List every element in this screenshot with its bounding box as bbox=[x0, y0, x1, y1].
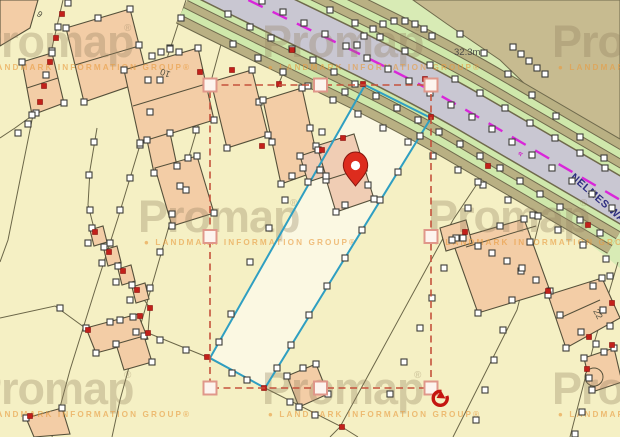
vertex-marker bbox=[312, 412, 318, 418]
vertex-marker bbox=[475, 179, 481, 185]
vertex-marker bbox=[364, 55, 370, 61]
vertex-marker bbox=[284, 373, 290, 379]
vertex-marker bbox=[509, 297, 515, 303]
change-vertex-marker bbox=[320, 148, 325, 153]
vertex-marker bbox=[249, 67, 255, 73]
vertex-marker bbox=[581, 355, 587, 361]
vertex-marker bbox=[63, 25, 69, 31]
vertex-marker bbox=[85, 240, 91, 246]
vertex-marker bbox=[448, 102, 454, 108]
watermark-reg: ® bbox=[124, 23, 132, 34]
vertex-marker bbox=[533, 277, 539, 283]
vertex-marker bbox=[391, 18, 397, 24]
vertex-marker bbox=[380, 125, 386, 131]
vertex-marker bbox=[149, 359, 155, 365]
vertex-marker bbox=[101, 244, 107, 250]
vertex-marker bbox=[169, 211, 175, 217]
vertex-marker bbox=[607, 273, 613, 279]
vertex-marker bbox=[278, 181, 284, 187]
vertex-marker bbox=[274, 365, 280, 371]
vertex-marker bbox=[319, 129, 325, 135]
selection-handle-sw[interactable] bbox=[204, 382, 217, 395]
vertex-marker bbox=[421, 26, 427, 32]
vertex-marker bbox=[370, 26, 376, 32]
vertex-marker bbox=[99, 260, 105, 266]
vertex-marker bbox=[460, 235, 466, 241]
watermark-tagline: ● LANDMARK INFORMATION GROUP® bbox=[268, 63, 481, 72]
vertex-marker bbox=[527, 120, 533, 126]
vertex-marker bbox=[113, 279, 119, 285]
vertex-marker bbox=[287, 399, 293, 405]
vertex-marker bbox=[380, 21, 386, 27]
vertex-marker bbox=[549, 165, 555, 171]
vertex-marker bbox=[342, 255, 348, 261]
vertex-marker bbox=[572, 431, 578, 437]
vertex-marker bbox=[521, 216, 527, 222]
watermark-tagline: ● LANDMARK INFORMATION GROUP® bbox=[558, 410, 620, 419]
vertex-marker bbox=[509, 139, 515, 145]
vertex-marker bbox=[185, 155, 191, 161]
vertex-marker bbox=[354, 42, 360, 48]
vertex-marker bbox=[441, 265, 447, 271]
change-vertex-marker bbox=[138, 314, 143, 319]
vertex-marker bbox=[147, 285, 153, 291]
vertex-marker bbox=[136, 42, 142, 48]
vertex-marker bbox=[151, 170, 157, 176]
vertex-marker bbox=[359, 227, 365, 233]
vertex-marker bbox=[265, 132, 271, 138]
change-vertex-marker bbox=[38, 100, 43, 105]
change-vertex-marker bbox=[135, 288, 140, 293]
vertex-marker bbox=[377, 197, 383, 203]
vertex-marker bbox=[307, 125, 313, 131]
vertex-marker bbox=[317, 167, 323, 173]
vertex-marker bbox=[49, 50, 55, 56]
vertex-marker bbox=[526, 58, 532, 64]
vertex-marker bbox=[324, 283, 330, 289]
change-vertex-marker bbox=[546, 289, 551, 294]
vertex-marker bbox=[330, 97, 336, 103]
vertex-marker bbox=[121, 67, 127, 73]
vertex-marker bbox=[288, 342, 294, 348]
vertex-marker bbox=[429, 33, 435, 39]
change-vertex-marker bbox=[121, 269, 126, 274]
vertex-marker bbox=[55, 24, 61, 30]
vertex-marker bbox=[589, 387, 595, 393]
vertex-marker bbox=[158, 49, 164, 55]
vertex-marker bbox=[557, 204, 563, 210]
vertex-marker bbox=[300, 165, 306, 171]
vertex-marker bbox=[331, 69, 337, 75]
vertex-marker bbox=[93, 350, 99, 356]
watermark-tagline: ● LANDMARK INFORMATION GROUP® bbox=[268, 410, 481, 419]
vertex-marker bbox=[195, 45, 201, 51]
change-vertex-marker bbox=[463, 230, 468, 235]
change-vertex-marker bbox=[86, 328, 91, 333]
vertex-marker bbox=[599, 275, 605, 281]
vertex-marker bbox=[557, 312, 563, 318]
vertex-marker bbox=[130, 314, 136, 320]
vertex-marker bbox=[535, 213, 541, 219]
vertex-marker bbox=[342, 202, 348, 208]
vertex-marker bbox=[322, 31, 328, 37]
vertex-marker bbox=[25, 121, 31, 127]
vertex-marker bbox=[465, 205, 471, 211]
vertex-marker bbox=[260, 97, 266, 103]
vertex-marker bbox=[593, 341, 599, 347]
vertex-marker bbox=[401, 359, 407, 365]
vertex-marker bbox=[91, 139, 97, 145]
vertex-marker bbox=[394, 105, 400, 111]
vertex-marker bbox=[343, 43, 349, 49]
vertex-marker bbox=[607, 323, 613, 329]
vertex-marker bbox=[406, 78, 412, 84]
vertex-marker bbox=[473, 417, 479, 423]
vertex-marker bbox=[127, 297, 133, 303]
vertex-marker bbox=[176, 49, 182, 55]
vertex-marker bbox=[342, 89, 348, 95]
vertex-marker bbox=[133, 329, 139, 335]
change-vertex-marker bbox=[48, 60, 53, 65]
vertex-marker bbox=[129, 282, 135, 288]
vertex-marker bbox=[297, 153, 303, 159]
vertex-marker bbox=[601, 155, 607, 161]
selection-handle-e[interactable] bbox=[425, 230, 438, 243]
vertex-marker bbox=[497, 165, 503, 171]
vertex-marker bbox=[107, 319, 113, 325]
vertex-marker bbox=[365, 182, 371, 188]
vertex-marker bbox=[455, 167, 461, 173]
vertex-marker bbox=[81, 99, 87, 105]
vertex-marker bbox=[385, 66, 391, 72]
vertex-marker bbox=[449, 237, 455, 243]
vertex-marker bbox=[352, 20, 358, 26]
vertex-marker bbox=[427, 62, 433, 68]
vertex-marker bbox=[504, 258, 510, 264]
vertex-marker bbox=[300, 365, 306, 371]
vertex-marker bbox=[228, 311, 234, 317]
watermark-tagline: ● LANDMARK INFORMATION GROUP® bbox=[144, 238, 357, 247]
vertex-marker bbox=[280, 9, 286, 15]
watermark-brand: Promap bbox=[262, 16, 424, 67]
vertex-marker bbox=[147, 109, 153, 115]
change-vertex-marker bbox=[93, 230, 98, 235]
vertex-marker bbox=[377, 34, 383, 40]
vertex-marker bbox=[502, 105, 508, 111]
vertex-marker bbox=[569, 178, 575, 184]
vertex-marker bbox=[127, 175, 133, 181]
vertex-marker bbox=[282, 197, 288, 203]
change-vertex-marker bbox=[198, 70, 203, 75]
vertex-marker bbox=[529, 92, 535, 98]
vertex-marker bbox=[266, 225, 272, 231]
vertex-marker bbox=[289, 173, 295, 179]
vertex-marker bbox=[177, 183, 183, 189]
vertex-marker bbox=[306, 312, 312, 318]
vertex-marker bbox=[174, 163, 180, 169]
change-vertex-marker bbox=[42, 84, 47, 89]
vertex-marker bbox=[577, 150, 583, 156]
vertex-marker bbox=[553, 113, 559, 119]
change-vertex-marker bbox=[340, 425, 345, 430]
change-vertex-marker bbox=[230, 68, 235, 73]
watermark-brand: Promap bbox=[0, 363, 134, 414]
vertex-marker bbox=[469, 114, 475, 120]
change-vertex-marker bbox=[486, 164, 491, 169]
vertex-marker bbox=[127, 6, 133, 12]
vertex-marker bbox=[224, 145, 230, 151]
vertex-marker bbox=[590, 283, 596, 289]
vertex-marker bbox=[59, 405, 65, 411]
change-vertex-marker bbox=[107, 250, 112, 255]
vertex-marker bbox=[481, 50, 487, 56]
vertex-marker bbox=[518, 51, 524, 57]
vertex-marker bbox=[247, 259, 253, 265]
vertex-marker bbox=[477, 153, 483, 159]
vertex-marker bbox=[145, 77, 151, 83]
vertex-marker bbox=[216, 339, 222, 345]
change-vertex-marker bbox=[290, 48, 295, 53]
vertex-marker bbox=[387, 391, 393, 397]
vertex-marker bbox=[578, 329, 584, 335]
selection-handle-w[interactable] bbox=[204, 230, 217, 243]
vertex-marker bbox=[505, 197, 511, 203]
promap-map-canvas[interactable]: Promap®● LANDMARK INFORMATION GROUP®Prom… bbox=[0, 0, 620, 437]
vertex-marker bbox=[580, 242, 586, 248]
selection-handle-s[interactable] bbox=[314, 382, 327, 395]
vertex-marker bbox=[475, 243, 481, 249]
vertex-marker bbox=[310, 57, 316, 63]
vertex-marker bbox=[29, 112, 35, 118]
vertex-marker bbox=[395, 169, 401, 175]
vertex-marker bbox=[457, 141, 463, 147]
vertex-marker bbox=[355, 111, 361, 117]
selection-handle-nw[interactable] bbox=[204, 79, 217, 92]
vertex-marker bbox=[534, 65, 540, 71]
vertex-marker bbox=[137, 140, 143, 146]
vertex-marker bbox=[491, 357, 497, 363]
vertex-marker bbox=[497, 223, 503, 229]
pin-hole bbox=[351, 161, 360, 170]
vertex-marker bbox=[603, 256, 609, 262]
change-vertex-marker bbox=[260, 144, 265, 149]
change-vertex-marker bbox=[587, 335, 592, 340]
vertex-marker bbox=[95, 15, 101, 21]
selection-handle-n[interactable] bbox=[314, 79, 327, 92]
vertex-marker bbox=[117, 207, 123, 213]
vertex-marker bbox=[167, 130, 173, 136]
vertex-marker bbox=[609, 205, 615, 211]
spot-height-label: 32.3m bbox=[454, 47, 480, 58]
vertex-marker bbox=[15, 130, 21, 136]
vertex-marker bbox=[402, 18, 408, 24]
vertex-marker bbox=[247, 24, 253, 30]
vertex-marker bbox=[333, 209, 339, 215]
vertex-marker bbox=[563, 345, 569, 351]
change-vertex-marker bbox=[205, 355, 210, 360]
watermark-brand: Promap bbox=[552, 16, 620, 67]
vertex-marker bbox=[537, 191, 543, 197]
vertex-marker bbox=[183, 347, 189, 353]
vertex-marker bbox=[115, 263, 121, 269]
vertex-marker bbox=[19, 59, 25, 65]
vertex-marker bbox=[373, 93, 379, 99]
vertex-marker bbox=[113, 341, 119, 347]
vertex-marker bbox=[527, 239, 533, 245]
vertex-marker bbox=[500, 327, 506, 333]
vertex-marker bbox=[517, 178, 523, 184]
vertex-marker bbox=[529, 152, 535, 158]
change-vertex-marker bbox=[586, 223, 591, 228]
vertex-marker bbox=[301, 20, 307, 26]
vertex-marker bbox=[577, 217, 583, 223]
vertex-marker bbox=[87, 207, 93, 213]
vertex-marker bbox=[600, 307, 606, 313]
vertex-marker bbox=[457, 31, 463, 37]
change-vertex-marker bbox=[54, 36, 59, 41]
vertex-marker bbox=[157, 337, 163, 343]
vertex-marker bbox=[229, 370, 235, 376]
vertex-marker bbox=[323, 173, 329, 179]
vertex-marker bbox=[371, 196, 377, 202]
vertex-marker bbox=[299, 85, 305, 91]
map-svg[interactable]: Promap®● LANDMARK INFORMATION GROUP®Prom… bbox=[0, 0, 620, 437]
vertex-marker bbox=[65, 0, 71, 6]
vertex-marker bbox=[601, 349, 607, 355]
vertex-marker bbox=[405, 139, 411, 145]
vertex-marker bbox=[412, 21, 418, 27]
vertex-marker bbox=[402, 48, 408, 54]
vertex-marker bbox=[149, 53, 155, 59]
vertex-marker bbox=[352, 81, 358, 87]
vertex-marker bbox=[589, 191, 595, 197]
change-vertex-marker bbox=[585, 367, 590, 372]
vertex-marker bbox=[280, 69, 286, 75]
vertex-marker bbox=[167, 46, 173, 52]
change-vertex-marker bbox=[146, 331, 151, 336]
vertex-marker bbox=[597, 230, 603, 236]
vertex-marker bbox=[552, 135, 558, 141]
vertex-marker bbox=[577, 134, 583, 140]
vertex-marker bbox=[183, 187, 189, 193]
vertex-marker bbox=[415, 117, 421, 123]
change-vertex-marker bbox=[148, 306, 153, 311]
vertex-marker bbox=[305, 83, 311, 89]
vertex-marker bbox=[43, 72, 49, 78]
vertex-marker bbox=[296, 404, 302, 410]
vertex-marker bbox=[269, 139, 275, 145]
vertex-marker bbox=[579, 409, 585, 415]
watermark-reg: ® bbox=[414, 370, 422, 381]
vertex-marker bbox=[361, 33, 367, 39]
change-vertex-marker bbox=[60, 12, 65, 17]
vertex-marker bbox=[305, 179, 311, 185]
vertex-marker bbox=[519, 265, 525, 271]
vertex-marker bbox=[144, 137, 150, 143]
vertex-marker bbox=[230, 41, 236, 47]
vertex-marker bbox=[193, 127, 199, 133]
vertex-marker bbox=[482, 387, 488, 393]
vertex-marker bbox=[489, 126, 495, 132]
change-vertex-marker bbox=[341, 136, 346, 141]
vertex-marker bbox=[178, 15, 184, 21]
vertex-marker bbox=[327, 7, 333, 13]
vertex-marker bbox=[475, 310, 481, 316]
vertex-marker bbox=[436, 129, 442, 135]
vertex-marker bbox=[505, 71, 511, 77]
vertex-marker bbox=[211, 210, 217, 216]
watermark-brand: Promap bbox=[138, 191, 300, 242]
vertex-marker bbox=[489, 250, 495, 256]
change-vertex-marker bbox=[610, 301, 615, 306]
watermark-reg: ® bbox=[580, 198, 588, 209]
vertex-marker bbox=[417, 325, 423, 331]
selection-handle-ne[interactable] bbox=[425, 79, 438, 92]
vertex-marker bbox=[477, 90, 483, 96]
vertex-marker bbox=[555, 227, 561, 233]
vertex-marker bbox=[602, 165, 608, 171]
vertex-marker bbox=[244, 377, 250, 383]
vertex-marker bbox=[510, 44, 516, 50]
vertex-marker bbox=[107, 240, 113, 246]
change-vertex-marker bbox=[28, 414, 33, 419]
vertex-marker bbox=[429, 295, 435, 301]
vertex-marker bbox=[586, 375, 592, 381]
vertex-marker bbox=[57, 305, 63, 311]
vertex-marker bbox=[417, 133, 423, 139]
vertex-marker bbox=[542, 71, 548, 77]
vertex-marker bbox=[61, 100, 67, 106]
vertex-marker bbox=[169, 223, 175, 229]
vertex-marker bbox=[211, 117, 217, 123]
vertex-marker bbox=[194, 153, 200, 159]
vertex-marker bbox=[255, 55, 261, 61]
vertex-marker bbox=[86, 172, 92, 178]
watermark-tagline: ● LANDMARK INFORMATION GROUP® bbox=[558, 63, 620, 72]
vertex-marker bbox=[157, 77, 163, 83]
vertex-marker bbox=[225, 11, 231, 17]
vertex-marker bbox=[452, 76, 458, 82]
vertex-marker bbox=[157, 249, 163, 255]
change-vertex-marker bbox=[610, 343, 615, 348]
vertex-marker bbox=[268, 35, 274, 41]
watermark-reg: ® bbox=[124, 370, 132, 381]
vertex-marker bbox=[259, 0, 265, 4]
vertex-marker bbox=[117, 317, 123, 323]
vertex-marker bbox=[313, 361, 319, 367]
